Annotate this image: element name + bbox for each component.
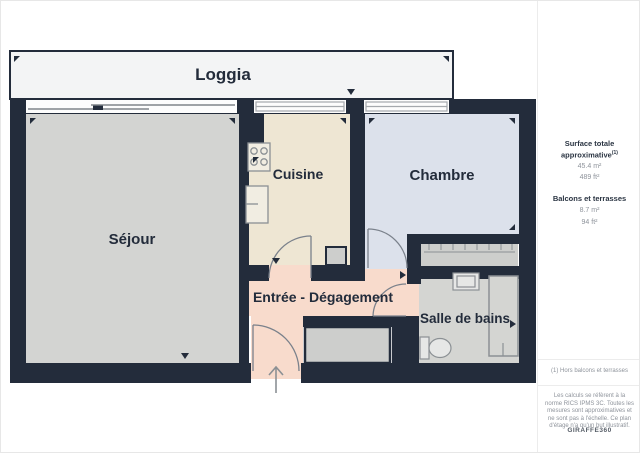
surface-title: Surface totale approximative(1) [538, 139, 640, 161]
surface-ft2: 489 ft² [538, 172, 640, 184]
entree-label: Entrée - Dégagement [253, 289, 393, 305]
wall-corridor-bain [392, 316, 419, 363]
sejour-window-opening [26, 100, 237, 113]
cuisine-window [254, 100, 346, 113]
entree-closet [305, 327, 390, 363]
sliding-door-handle [93, 106, 103, 111]
chambre-door-nook-floor [365, 234, 407, 271]
bath-door-gap [407, 284, 419, 316]
brand-name: GIRAFFE360 [538, 427, 640, 434]
surface-title-text: Surface totale approximative [561, 139, 614, 159]
disclaimer-text: Les calculs se réfèrent à la norme RICS … [538, 393, 640, 431]
cuisine-door-gap [269, 265, 311, 281]
toilet-icon [420, 337, 451, 359]
chambre-closet-floor [421, 244, 518, 266]
loggia-label: Loggia [195, 65, 251, 84]
wall-cuisine-bottom-a [249, 265, 269, 281]
surface-note-ref: (1) [612, 150, 618, 156]
cuisine-duct [326, 247, 346, 265]
balconies-m2: 8.7 m² [538, 205, 640, 217]
wall-entree-closet-top [303, 316, 392, 327]
kitchen-sink-icon [246, 186, 268, 223]
panel-divider-top [538, 359, 640, 360]
chambre-closet [421, 244, 518, 266]
footnote: (1) Hors balcons et terrasses [538, 368, 640, 374]
floor-plan-drawing: Loggia Séjour Cuisine Chambre Entrée - D… [1, 1, 538, 453]
bathroom-sink-icon [453, 273, 479, 290]
bain-label: Salle de bains [420, 311, 510, 326]
cuisine-label: Cuisine [273, 166, 324, 182]
wall-bottom-right [301, 363, 536, 383]
wall-left [10, 99, 26, 383]
wall-bottom-left [10, 363, 251, 383]
info-panel: Surface totale approximative(1) 45.4 m² … [537, 1, 640, 452]
surface-summary: Surface totale approximative(1) 45.4 m² … [538, 139, 640, 229]
wall-cuisine-bottom-b [311, 265, 365, 281]
floorplan-canvas: Loggia Séjour Cuisine Chambre Entrée - D… [0, 0, 640, 453]
wall-cuisine-chambre [350, 114, 365, 271]
chambre-label: Chambre [409, 167, 474, 184]
balconies-ft2: 94 ft² [538, 217, 640, 229]
surface-m2: 45.4 m² [538, 161, 640, 173]
wall-chambre-bottom [407, 234, 536, 244]
sejour-sliding-window [26, 100, 237, 113]
balconies-title: Balcons et terrasses [538, 194, 640, 205]
panel-divider-bottom [538, 385, 640, 386]
sejour-label: Séjour [109, 231, 156, 248]
chambre-window [364, 100, 449, 113]
